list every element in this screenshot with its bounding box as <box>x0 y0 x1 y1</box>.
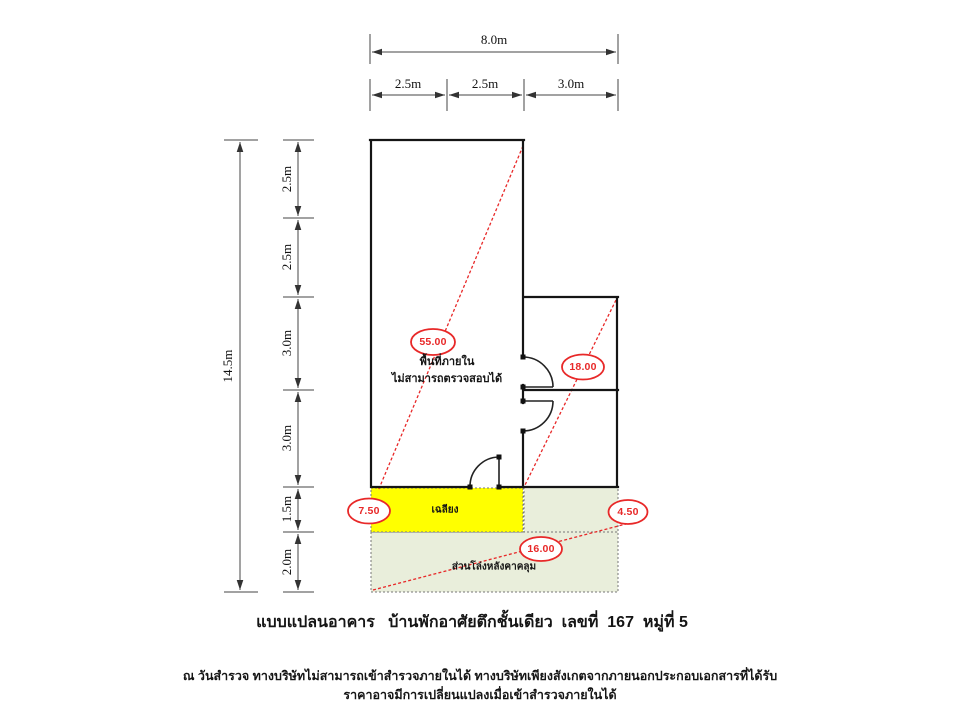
porch-label: เฉลียง <box>431 503 458 518</box>
interior-note: พื้นที่ภายใน ไม่สามารถตรวจสอบได้ <box>392 354 502 388</box>
dim-left-seg-6: 2.0m <box>279 549 295 575</box>
dim-left-seg-2: 2.5m <box>279 244 295 270</box>
left-dimension-lines <box>224 140 314 592</box>
ground-areas <box>371 487 618 592</box>
disclaimer-line-2: ราคาอาจมีการเปลี่ยนแปลงเมื่อเข้าสำรวจภาย… <box>0 685 960 705</box>
dim-left-total: 14.5m <box>220 350 236 383</box>
door-porch <box>470 457 499 487</box>
area-value-rear-covered: 16.00 <box>527 543 554 555</box>
wing-area-diagonal <box>525 300 616 485</box>
interior-note-line1: พื้นที่ภายใน <box>392 354 502 371</box>
area-value-porch: 7.50 <box>358 505 379 517</box>
side-covered-area <box>524 487 618 532</box>
dim-top-seg-1: 2.5m <box>395 76 421 92</box>
interior-note-line2: ไม่สามารถตรวจสอบได้ <box>392 371 502 388</box>
dim-left-seg-5: 1.5m <box>279 496 295 522</box>
dim-left-seg-3: 3.0m <box>279 330 295 356</box>
area-value-main: 55.00 <box>419 336 446 348</box>
door-upper-room <box>523 357 553 387</box>
dim-top-seg-3: 3.0m <box>558 76 584 92</box>
dim-left-seg-4: 3.0m <box>279 425 295 451</box>
floor-plan-page: 8.0m 2.5m 2.5m 3.0m 14.5m 2.5m 2.5m 3.0m… <box>0 0 960 720</box>
dim-left-seg-1: 2.5m <box>279 166 295 192</box>
area-value-side-covered: 4.50 <box>617 506 638 518</box>
dim-top-seg-2: 2.5m <box>472 76 498 92</box>
rear-covered-label: ส่วนโล่งหลังคาคลุม <box>452 560 536 575</box>
plan-title: แบบแปลนอาคาร บ้านพักอาศัยตึกชั้นเดียว เล… <box>0 610 944 635</box>
building-walls <box>370 140 618 487</box>
door-lower-room <box>523 401 553 431</box>
main-area-diagonal <box>378 146 523 491</box>
dim-top-total: 8.0m <box>481 32 507 48</box>
area-value-wing: 18.00 <box>569 361 596 373</box>
disclaimer-line-1: ณ วันสำรวจ ทางบริษัทไม่สามารถเข้าสำรวจภา… <box>0 666 960 686</box>
